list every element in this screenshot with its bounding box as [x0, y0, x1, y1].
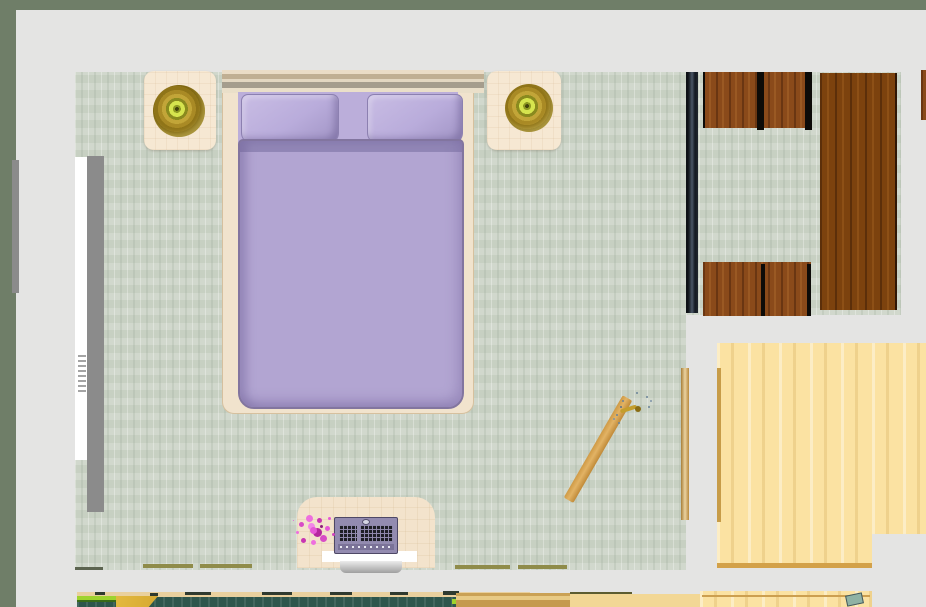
lower-pale-band [570, 594, 700, 607]
bed-duvet[interactable] [238, 139, 464, 409]
table-lamp-right[interactable] [505, 84, 553, 132]
seat-divider-bar [757, 72, 764, 130]
dark-divider-panel[interactable] [686, 72, 698, 313]
sill-dark-mark [75, 567, 103, 570]
sill-dash [143, 564, 193, 568]
left-cabinet-control-detail [78, 352, 86, 392]
seat-edge-bar [807, 264, 811, 316]
laptop-keyboard [360, 525, 393, 542]
pillow-right[interactable] [367, 94, 463, 144]
seat-divider-bar [761, 264, 765, 316]
door-handle-sketch-dots [622, 400, 624, 402]
balcony-plant [185, 592, 211, 595]
door-handle-knob [635, 406, 641, 412]
wood-seat-group-bottom[interactable] [703, 262, 811, 316]
desk-chair[interactable] [340, 561, 402, 573]
pillow-left[interactable] [241, 94, 339, 144]
floor-plan-canvas [0, 0, 926, 607]
balcony-plant [150, 593, 158, 596]
laptop[interactable] [334, 517, 398, 554]
hall-floor-edge-strip [717, 368, 721, 522]
bed-headboard [222, 70, 484, 93]
flower-bouquet[interactable] [289, 509, 339, 555]
door-frame-post [681, 368, 689, 520]
balcony-teal-band [145, 597, 456, 607]
balcony-plant [330, 592, 352, 595]
wood-seat-group-top[interactable] [703, 72, 812, 128]
left-cabinet-gray[interactable] [87, 156, 104, 512]
laptop-bottom-strip [338, 544, 394, 550]
balcony-plant [95, 592, 105, 595]
right-edge-wood-sliver [921, 70, 926, 120]
table-lamp-left[interactable] [153, 85, 205, 137]
laptop-label-dashes [340, 546, 392, 548]
lower-gold-band [456, 593, 570, 607]
sill-dash [455, 565, 510, 569]
seat-edge-bar [703, 72, 705, 128]
laptop-keypad-left [339, 525, 357, 541]
wardrobe[interactable] [820, 73, 897, 310]
balcony-plant [262, 592, 292, 595]
sill-dash [200, 564, 252, 568]
sill-dash [518, 565, 567, 569]
balcony-teal-left [77, 602, 118, 607]
wall-top [0, 0, 926, 10]
flowers-cluster [310, 527, 317, 534]
door-handle[interactable] [616, 398, 656, 428]
seat-divider-bar [805, 72, 812, 130]
hall-floor-bottom-strip [717, 563, 872, 568]
hall-floor [717, 343, 926, 563]
balcony-plant [390, 592, 408, 595]
lower-floor-cutoff [0, 588, 926, 607]
wall-left [0, 0, 16, 607]
hall-floor-notch [872, 534, 926, 563]
left-cabinet-white[interactable] [75, 157, 87, 460]
wall-left-gray-strip [12, 160, 19, 293]
